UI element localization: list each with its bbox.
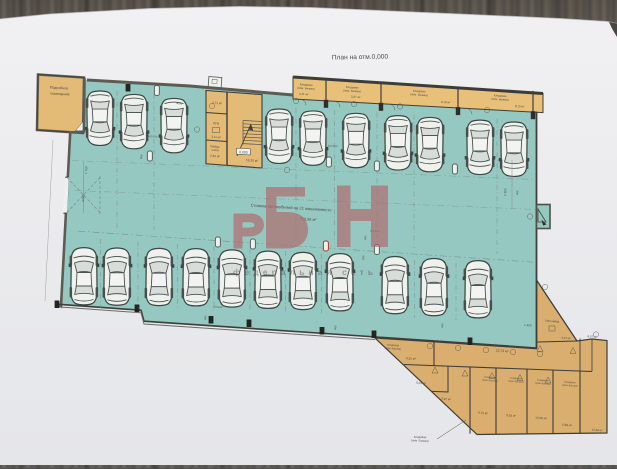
svg-text:3,87 м²: 3,87 м² <box>351 95 361 100</box>
svg-text:9,73 м²: 9,73 м² <box>478 411 488 416</box>
svg-text:9,88 м²: 9,88 м² <box>562 423 572 428</box>
svg-text:10,09 м²: 10,09 м² <box>535 416 547 421</box>
svg-text:5,01 м²: 5,01 м² <box>416 381 426 386</box>
svg-text:8,97 м²: 8,97 м² <box>587 334 596 339</box>
svg-text:4,21 м²: 4,21 м² <box>299 92 309 97</box>
svg-text:1 750: 1 750 <box>84 166 88 174</box>
svg-text:5,51 м²: 5,51 м² <box>406 356 416 361</box>
svg-text:2 300: 2 300 <box>503 188 508 196</box>
svg-text:(пом. багажа): (пом. багажа) <box>411 438 429 443</box>
svg-text:2,62 м²: 2,62 м² <box>210 154 220 159</box>
svg-text:5,97 м²: 5,97 м² <box>441 397 451 402</box>
svg-text:9,10 м²: 9,10 м² <box>441 100 451 105</box>
svg-text:6,97 м²: 6,97 м² <box>561 336 570 341</box>
svg-text:100 100: 100 100 <box>148 134 158 139</box>
svg-text:3000: 3000 <box>176 101 183 105</box>
svg-text:3,11 м²: 3,11 м² <box>211 135 221 140</box>
svg-text:3,71 м²: 3,71 м² <box>212 101 222 106</box>
svg-text:9,13 м²: 9,13 м² <box>515 104 525 109</box>
svg-text:1 400: 1 400 <box>524 323 532 328</box>
svg-text:План на отм.0,000: План на отм.0,000 <box>332 54 389 62</box>
svg-text:шлюз: шлюз <box>211 148 219 153</box>
svg-text:100 100: 100 100 <box>213 305 223 310</box>
svg-text:0,000: 0,000 <box>239 150 248 154</box>
svg-text:КУИ: КУИ <box>213 121 219 125</box>
svg-text:9,93 м²: 9,93 м² <box>506 413 516 418</box>
svg-text:100 100: 100 100 <box>328 144 338 149</box>
svg-text:16,20 м²: 16,20 м² <box>246 158 258 163</box>
svg-text:федеральная сеть: федеральная сеть <box>233 267 377 277</box>
svg-text:3 000: 3 000 <box>81 194 85 202</box>
svg-text:15,58 м²: 15,58 м² <box>592 428 603 433</box>
